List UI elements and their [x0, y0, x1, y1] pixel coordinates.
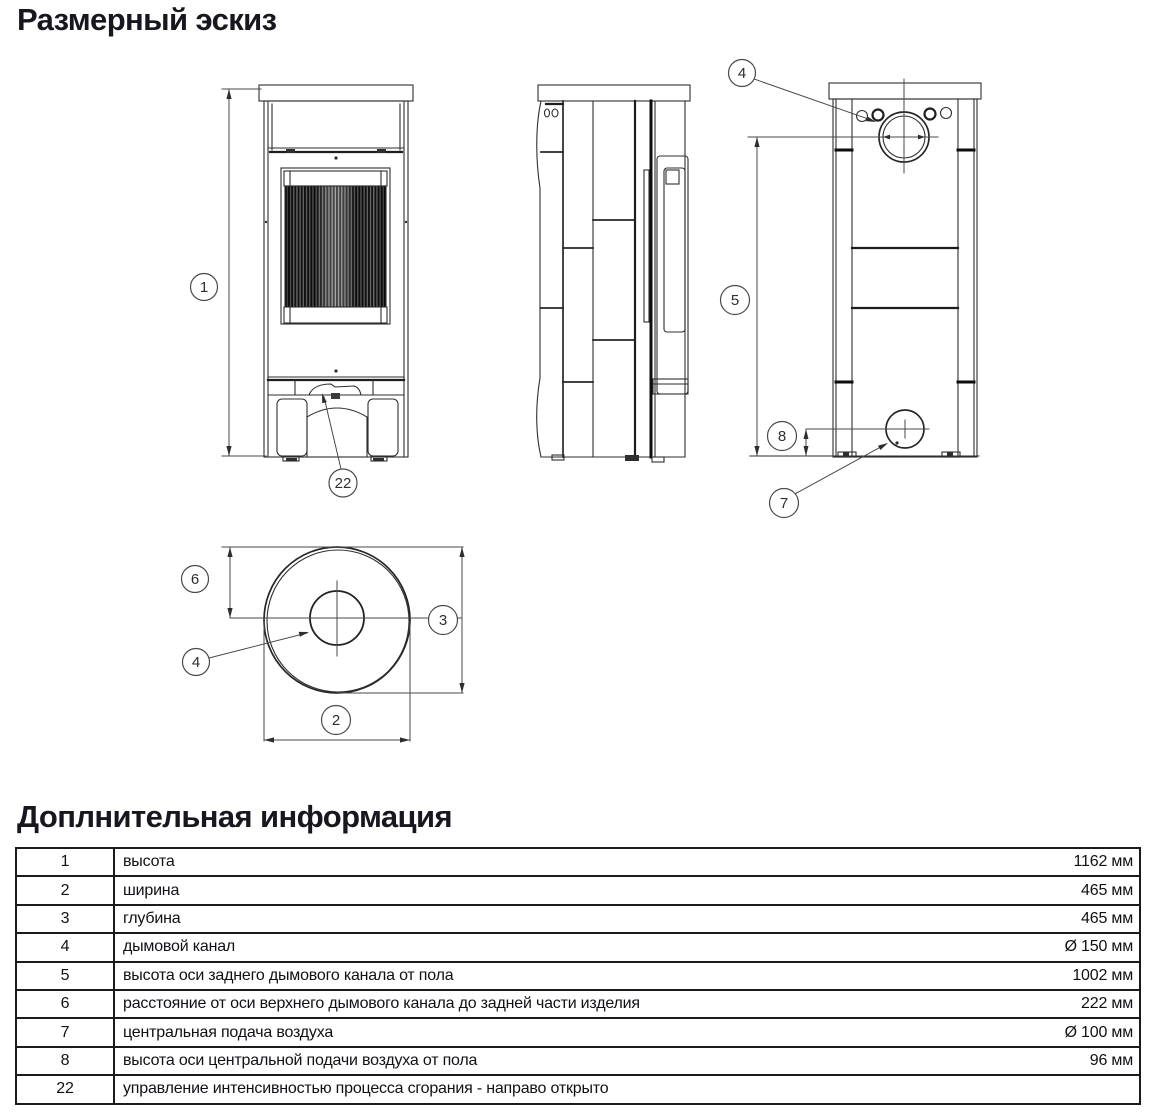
row-value: 1002 мм	[1072, 963, 1139, 989]
row-description: расстояние от оси верхнего дымового кана…	[115, 991, 1081, 1017]
row-description: центральная подача воздуха	[115, 1019, 1065, 1045]
callout-7-label: 7	[780, 495, 788, 512]
callout-flue: 4	[729, 60, 877, 123]
callout-air: 7	[770, 443, 889, 518]
callout-2-label: 2	[332, 712, 340, 729]
row-description: высота оси центральной подачи воздуха от…	[115, 1048, 1090, 1074]
row-number: 22	[17, 1076, 115, 1102]
table-row: 2ширина465 мм	[17, 877, 1139, 905]
row-number: 8	[17, 1048, 115, 1074]
table-row: 8высота оси центральной подачи воздуха о…	[17, 1048, 1139, 1076]
row-value: 465 мм	[1081, 877, 1139, 903]
row-number: 5	[17, 963, 115, 989]
front-view	[259, 85, 413, 461]
table-row: 4дымовой каналØ 150 мм	[17, 934, 1139, 962]
row-value: 465 мм	[1081, 906, 1139, 932]
side-view	[537, 85, 690, 462]
row-value: 96 мм	[1090, 1048, 1139, 1074]
row-value: Ø 100 мм	[1065, 1019, 1139, 1045]
table-row: 1высота1162 мм	[17, 849, 1139, 877]
dimensional-sketch-drawing: 1 22	[0, 0, 1156, 796]
table-row: 22управление интенсивностью процесса сго…	[17, 1076, 1139, 1102]
row-value: 222 мм	[1081, 991, 1139, 1017]
callout-4-top-label: 4	[192, 654, 200, 671]
info-table: 1высота1162 мм2ширина465 мм3глубина465 м…	[15, 847, 1141, 1105]
table-row: 6расстояние от оси верхнего дымового кан…	[17, 991, 1139, 1019]
bolt-hole	[925, 109, 936, 120]
dimension-flue-height: 5	[721, 137, 760, 456]
dimension-air-height: 8	[768, 422, 809, 457]
top-view: 6 3 2	[182, 547, 465, 743]
bolt-hole	[873, 110, 884, 121]
table-row: 3глубина465 мм	[17, 906, 1139, 934]
central-air-inlet	[806, 410, 929, 448]
row-description: высота	[115, 849, 1074, 875]
dimension-sketch-page: Размерный эскиз	[0, 0, 1156, 1118]
stove-door	[281, 168, 390, 324]
row-description: дымовой канал	[115, 934, 1065, 960]
row-description: высота оси заднего дымового канала от по…	[115, 963, 1072, 989]
callout-6-label: 6	[191, 571, 199, 588]
row-number: 1	[17, 849, 115, 875]
callout-8-label: 8	[778, 428, 786, 445]
row-description: управление интенсивностью процесса сгора…	[115, 1076, 1133, 1102]
callout-22-label: 22	[335, 475, 352, 492]
dimension-flue-offset: 6	[182, 547, 233, 618]
callout-flue-top: 4	[183, 632, 310, 676]
row-number: 3	[17, 906, 115, 932]
callout-1-label: 1	[200, 279, 208, 296]
row-value: Ø 150 мм	[1065, 934, 1139, 960]
row-value	[1133, 1076, 1139, 1102]
bolt-hole	[857, 111, 868, 122]
bolt-hole	[941, 108, 952, 119]
callout-4-label: 4	[738, 65, 746, 82]
row-description: глубина	[115, 906, 1081, 932]
table-row: 7центральная подача воздухаØ 100 мм	[17, 1019, 1139, 1047]
row-value: 1162 мм	[1074, 849, 1139, 875]
dimension-depth: 3	[337, 547, 465, 693]
callout-3-label: 3	[439, 612, 447, 629]
row-number: 2	[17, 877, 115, 903]
row-number: 7	[17, 1019, 115, 1045]
dimension-height: 1	[191, 89, 267, 456]
row-description: ширина	[115, 877, 1081, 903]
row-number: 6	[17, 991, 115, 1017]
combustion-control-lever	[309, 384, 361, 399]
door-handle	[644, 170, 649, 322]
row-number: 4	[17, 934, 115, 960]
rear-air-hole	[552, 109, 558, 117]
rear-air-hole	[545, 109, 550, 117]
back-view	[748, 79, 981, 457]
section-title: Доплнительная информация	[17, 799, 452, 835]
table-row: 5высота оси заднего дымового канала от п…	[17, 963, 1139, 991]
flue-outlet	[748, 79, 952, 173]
callout-5-label: 5	[731, 292, 739, 309]
